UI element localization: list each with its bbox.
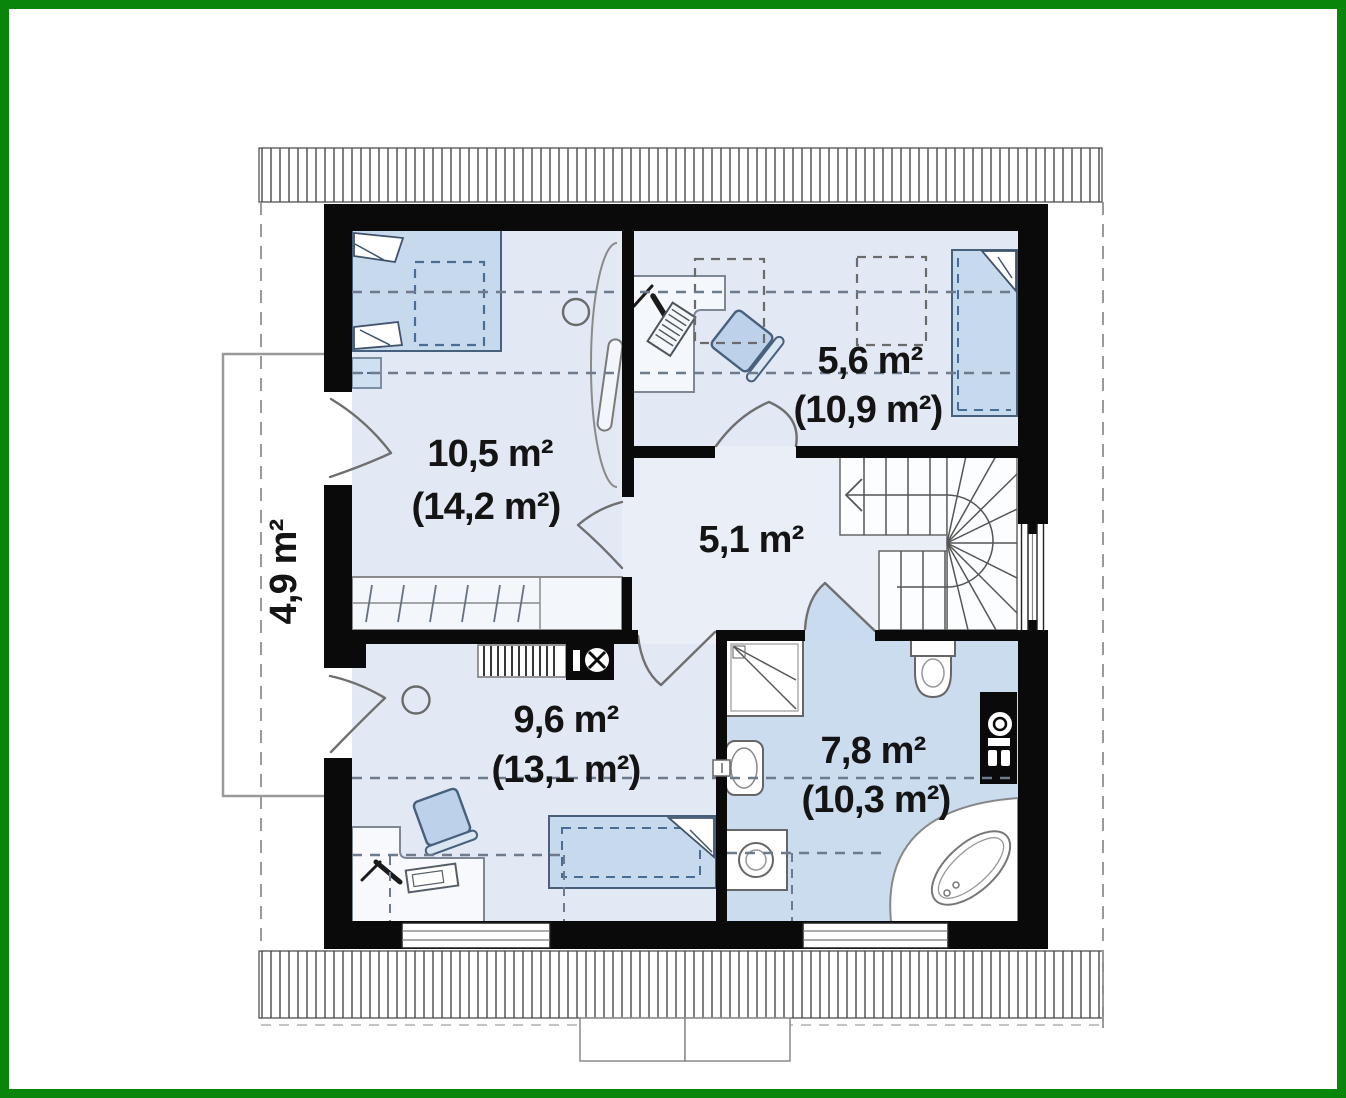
svg-text:5,1 m²: 5,1 m² xyxy=(698,519,803,561)
svg-text:5,6 m²: 5,6 m² xyxy=(817,340,922,382)
svg-text:10,5 m²: 10,5 m² xyxy=(427,433,553,475)
svg-text:(14,2 m²): (14,2 m²) xyxy=(411,486,560,528)
svg-text:(10,9 m²): (10,9 m²) xyxy=(793,389,942,431)
svg-text:9,6 m²: 9,6 m² xyxy=(513,699,618,741)
svg-text:(10,3 m²): (10,3 m²) xyxy=(801,779,950,821)
svg-text:4,9 m²: 4,9 m² xyxy=(263,519,305,624)
svg-text:7,8 m²: 7,8 m² xyxy=(820,730,925,772)
svg-text:(13,1 m²): (13,1 m²) xyxy=(491,749,640,791)
